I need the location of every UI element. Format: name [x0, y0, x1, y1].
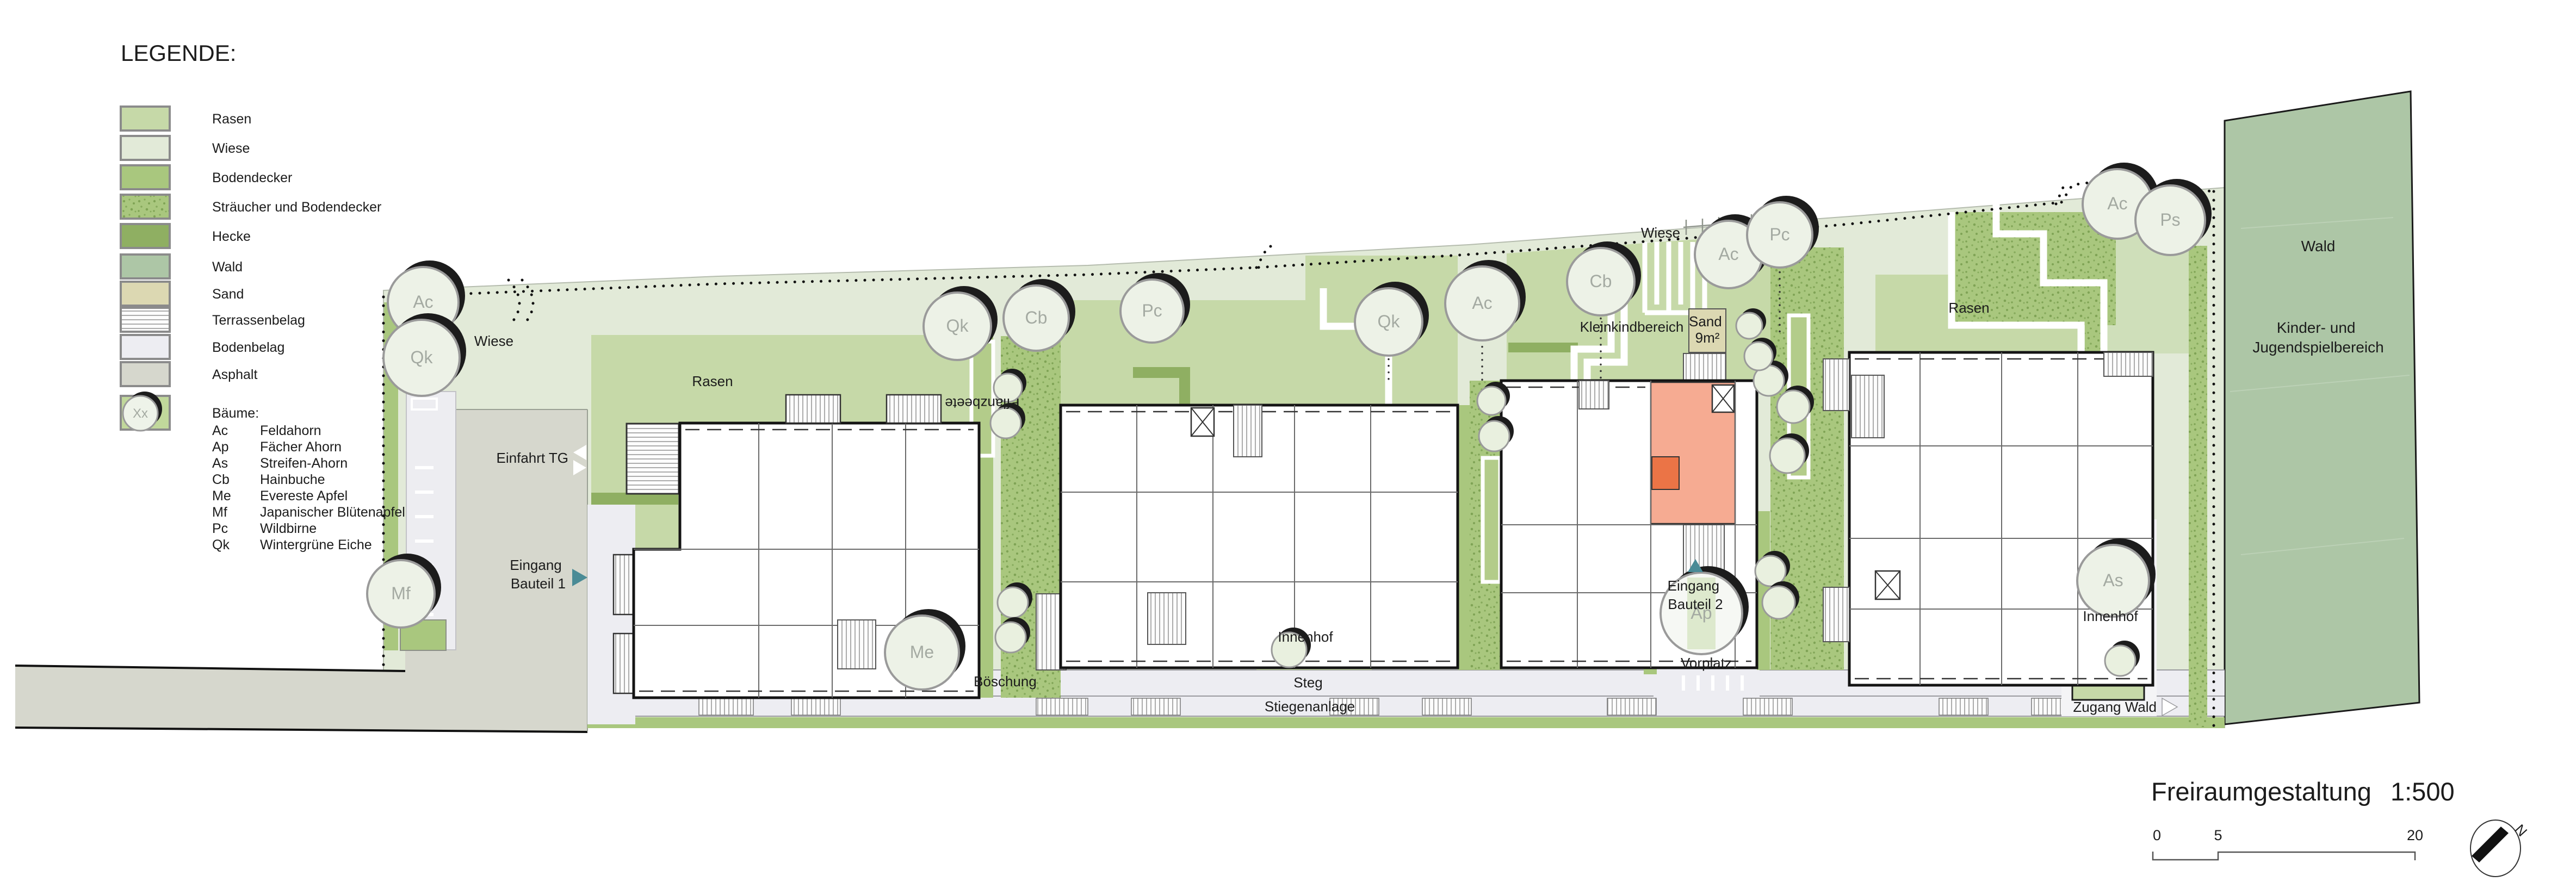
tree-label: Qk: [1378, 312, 1401, 331]
scale-bar: 0 5 20: [2153, 827, 2423, 860]
b1-terrace-top-b: [887, 395, 941, 423]
rasen-left-label: Rasen: [692, 373, 733, 389]
drawing-title: Freiraumgestaltung 1:500: [2151, 777, 2455, 806]
pflanzbeete-label: Pflanzbeete: [945, 395, 1019, 412]
b1-stair: [838, 620, 876, 669]
species-name: Streifen-Ahorn: [260, 456, 348, 471]
tree-label: Ac: [1718, 244, 1738, 264]
wald-area: Wald Kinder- und Jugendspielbereich: [2225, 91, 2419, 724]
bodendecker-bottom-band: [587, 717, 2225, 728]
bodendecker-strip-b2b3: [1458, 405, 1470, 670]
species-name: Hainbuche: [260, 472, 325, 487]
kleinkindbereich-label: Kleinkindbereich: [1580, 319, 1684, 335]
rasen-right-label: Rasen: [1948, 300, 1989, 316]
b3-elevator: [1712, 385, 1734, 412]
swatch-hecke: [121, 224, 170, 248]
tree-label: Mf: [391, 583, 411, 603]
tree-swatch-code: Xx: [133, 406, 148, 421]
legend-label-wiese: Wiese: [212, 141, 250, 156]
legend-trees: Xx Bäume: Ac Feldahorn Ap Fächer Ahorn A…: [121, 392, 405, 552]
einfahrt-tg-label: Einfahrt TG: [497, 450, 568, 466]
b4-outside-stair-b: [1823, 587, 1849, 642]
tree-label: Ac: [2107, 194, 2127, 213]
legend-trees-title: Bäume:: [212, 406, 259, 421]
species-code: Me: [212, 488, 231, 504]
b4-elevator: [1875, 571, 1900, 599]
species-code: Ac: [212, 423, 228, 438]
legend-title: LEGENDE:: [121, 40, 236, 66]
b3-highlight-unit-dark: [1652, 457, 1679, 489]
b2-terrace: [1234, 405, 1262, 457]
species-name: Fächer Ahorn: [260, 439, 342, 455]
swatch-rasen: [121, 107, 170, 131]
scale-tick-20: 20: [2407, 827, 2423, 843]
planter-box: [1483, 458, 1500, 582]
wiese-left-label: Wiese: [474, 333, 513, 349]
species-name: Evereste Apfel: [260, 488, 348, 504]
b2-elevator: [1191, 408, 1214, 436]
swatch-sand: [121, 282, 170, 306]
b1-terrace-left-a: [614, 555, 634, 614]
b4-terrace-left: [1852, 375, 1884, 438]
building-2: [1036, 405, 1458, 670]
legend-label-hecke: Hecke: [212, 229, 251, 244]
swatch-wald: [121, 254, 170, 278]
legend-label-wald: Wald: [212, 259, 243, 275]
legend-label-terrassenbelag: Terrassenbelag: [212, 313, 305, 328]
swatch-asphalt: [121, 362, 170, 386]
wald-polygon: [2225, 91, 2419, 724]
tree-label: Pc: [1769, 225, 1789, 244]
north-needle: [2472, 827, 2509, 862]
species-name: Wildbirne: [260, 521, 317, 536]
building-4: [1823, 352, 2153, 685]
species-name: Wintergrüne Eiche: [260, 537, 372, 552]
tree-label: As: [2103, 570, 2123, 590]
swatch-bodendecker: [121, 165, 170, 189]
scale-tick-5: 5: [2214, 827, 2222, 843]
wiese-top-label: Wiese: [1641, 225, 1680, 241]
species-code: Qk: [212, 537, 230, 552]
tree-label: Qk: [411, 347, 434, 367]
b4-terrace-top: [2104, 352, 2153, 376]
scale-bar-line: [2153, 852, 2415, 860]
tree-label: Me: [910, 642, 934, 662]
legend-labels: Rasen Wiese Bodendecker Sträucher und Bo…: [212, 111, 381, 382]
vorplatz-label: Vorplatz: [1681, 655, 1732, 671]
tree-label: Ac: [413, 292, 433, 312]
tree-label: Pc: [1142, 301, 1162, 320]
innenhof-right-label: Innenhof: [2083, 608, 2138, 624]
straeucher-topright-b: [2085, 228, 2101, 352]
legend-label-sand: Sand: [212, 287, 244, 302]
swatch-wiese: [121, 136, 170, 160]
legend-swatches: [121, 107, 170, 386]
species-name: Japanischer Blütenapfel: [260, 505, 405, 520]
b1-terrace-top: [627, 424, 679, 494]
b1-terrace-left-b: [614, 634, 634, 693]
legend-label-straeucher: Sträucher und Bodendecker: [212, 200, 381, 215]
legend-label-bodenbelag: Bodenbelag: [212, 340, 284, 355]
zugang-wald-label: Zugang Wald: [2073, 699, 2157, 715]
site-plan-canvas: Wald Kinder- und Jugendspielbereich: [0, 0, 2576, 894]
tree-label: Qk: [946, 316, 969, 336]
species-code: Mf: [212, 505, 227, 520]
innenhof-left-label: Innenhof: [1278, 629, 1333, 645]
tree-label: Cb: [1590, 271, 1612, 291]
b4-outside-stair-a: [1823, 359, 1849, 411]
legend: LEGENDE: Rasen Wiese Bodendecker Sträuch…: [121, 40, 405, 552]
swatch-terrassenbelag: [121, 308, 170, 332]
species-code: Pc: [212, 521, 228, 536]
swatch-bodenbelag: [121, 335, 170, 359]
title-block: Freiraumgestaltung 1:500 0 5 20 N: [2151, 777, 2530, 877]
legend-label-asphalt: Asphalt: [212, 367, 257, 382]
b3-terrace: [1579, 381, 1609, 409]
north-arrow: N: [2470, 820, 2530, 877]
b1-terrace-top-a: [786, 395, 840, 423]
straeucher-strip-wald: [2189, 246, 2207, 727]
tree-label: Ac: [1472, 293, 1492, 313]
stiegenanlage-label: Stiegenanlage: [1265, 698, 1355, 715]
scale-tick-0: 0: [2153, 827, 2161, 843]
steg-label: Steg: [1293, 674, 1323, 691]
swatch-straeucher: [121, 195, 170, 219]
north-letter: N: [2512, 821, 2531, 840]
north-circle: [2470, 820, 2521, 877]
b2-stair: [1148, 593, 1186, 644]
species-code: Ap: [212, 439, 229, 455]
species-code: Cb: [212, 472, 230, 487]
wald-label: Wald: [2301, 238, 2336, 254]
legend-label-bodendecker: Bodendecker: [212, 170, 292, 185]
tree-label: Ps: [2160, 210, 2180, 229]
legend-label-rasen: Rasen: [212, 111, 251, 127]
legend-species-list: Ac Feldahorn Ap Fächer Ahorn As Streifen…: [212, 423, 405, 552]
tree-label: Cb: [1025, 308, 1048, 327]
boeschung-label: Böschung: [974, 673, 1037, 690]
species-name: Feldahorn: [260, 423, 321, 438]
species-code: As: [212, 456, 228, 471]
